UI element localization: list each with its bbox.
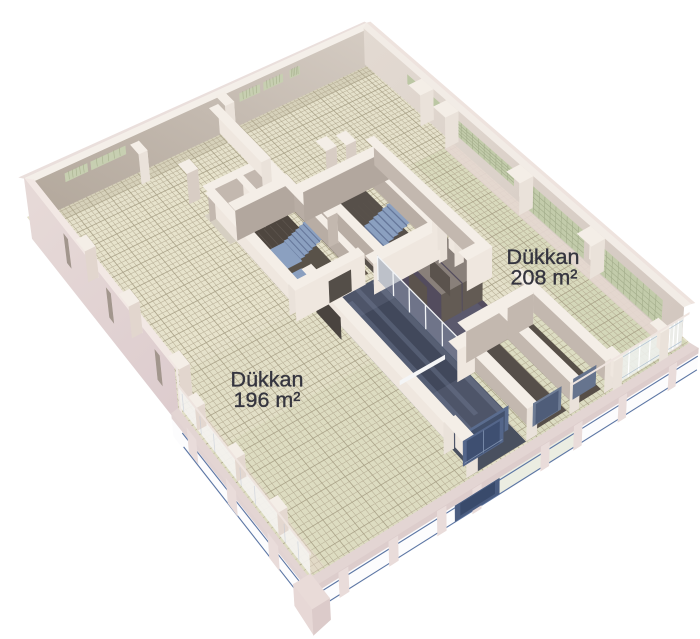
svg-text:208 m²: 208 m²	[511, 266, 578, 290]
svg-text:196 m²: 196 m²	[234, 388, 301, 412]
